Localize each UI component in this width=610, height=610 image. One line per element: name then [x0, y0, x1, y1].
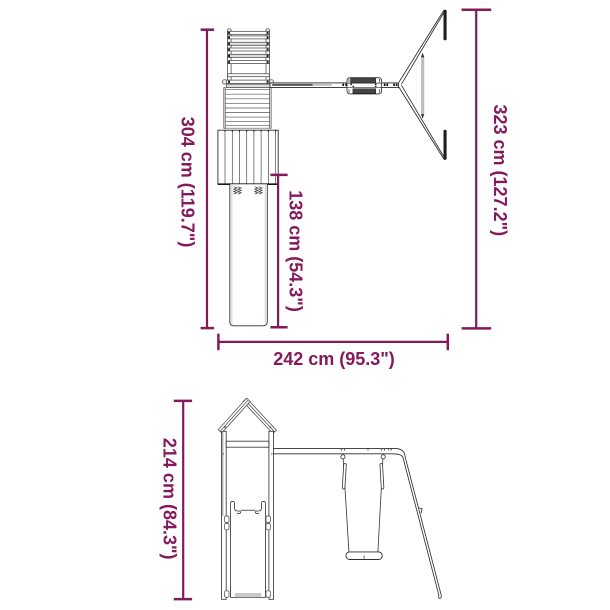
svg-text:242 cm (95.3"): 242 cm (95.3"): [273, 349, 395, 369]
svg-text:304 cm (119.7"): 304 cm (119.7"): [178, 117, 198, 248]
svg-text:323 cm (127.2"): 323 cm (127.2"): [490, 104, 510, 236]
svg-text:214 cm (84.3"): 214 cm (84.3"): [160, 438, 180, 560]
svg-text:138 cm (54.3"): 138 cm (54.3"): [285, 190, 305, 312]
